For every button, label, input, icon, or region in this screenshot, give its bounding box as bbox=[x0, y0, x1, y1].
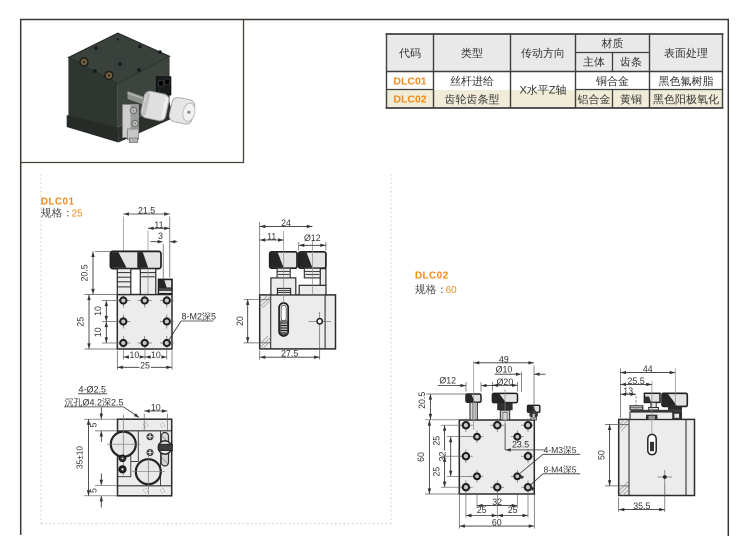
svg-text:Z: Z bbox=[549, 85, 556, 97]
svg-text:35.5: 35.5 bbox=[633, 501, 650, 511]
svg-text:25: 25 bbox=[432, 467, 442, 477]
svg-text:35±10: 35±10 bbox=[75, 446, 85, 469]
svg-text:24: 24 bbox=[281, 218, 291, 228]
svg-text:4-M3: 4-M3 bbox=[544, 445, 564, 455]
svg-text:5: 5 bbox=[89, 488, 99, 493]
svg-text:23.5: 23.5 bbox=[512, 439, 529, 449]
svg-text:10: 10 bbox=[93, 327, 103, 337]
svg-text:8-M2: 8-M2 bbox=[182, 312, 203, 322]
svg-text:DLC02: DLC02 bbox=[415, 270, 449, 281]
svg-text:44: 44 bbox=[643, 364, 653, 374]
svg-text:25: 25 bbox=[508, 505, 518, 515]
svg-text:5: 5 bbox=[572, 445, 577, 455]
svg-text:25: 25 bbox=[477, 505, 487, 515]
svg-text:21.5: 21.5 bbox=[138, 206, 155, 216]
svg-text:Ø20: Ø20 bbox=[497, 377, 514, 387]
svg-text:60: 60 bbox=[416, 452, 426, 462]
svg-text:20: 20 bbox=[235, 316, 245, 326]
svg-text:25: 25 bbox=[432, 436, 442, 446]
svg-text:50: 50 bbox=[597, 450, 607, 460]
svg-text:27.5: 27.5 bbox=[281, 349, 298, 359]
svg-text:13: 13 bbox=[623, 386, 633, 396]
svg-text:25.5: 25.5 bbox=[628, 376, 645, 386]
svg-text:10: 10 bbox=[151, 350, 161, 360]
svg-text:49: 49 bbox=[499, 354, 509, 364]
svg-text:5: 5 bbox=[89, 422, 99, 427]
svg-text:X: X bbox=[520, 85, 528, 97]
svg-text:8-M4: 8-M4 bbox=[544, 464, 564, 474]
svg-text:11: 11 bbox=[154, 220, 163, 230]
svg-text:Ø4.2: Ø4.2 bbox=[83, 397, 103, 407]
svg-text:25: 25 bbox=[140, 360, 150, 370]
svg-text:20.5: 20.5 bbox=[80, 264, 90, 281]
svg-text:20.5: 20.5 bbox=[417, 392, 427, 409]
svg-text:60: 60 bbox=[446, 285, 458, 296]
svg-text:25: 25 bbox=[72, 208, 84, 219]
svg-text:2.5: 2.5 bbox=[111, 397, 124, 407]
svg-text:11: 11 bbox=[267, 232, 276, 242]
svg-text:60: 60 bbox=[492, 518, 502, 528]
svg-text:DLC02: DLC02 bbox=[393, 94, 426, 106]
svg-text:5: 5 bbox=[572, 464, 577, 474]
svg-text:25: 25 bbox=[76, 317, 86, 327]
svg-text:10: 10 bbox=[130, 350, 140, 360]
svg-text:10: 10 bbox=[151, 403, 161, 413]
svg-text:Ø12: Ø12 bbox=[304, 233, 321, 243]
svg-text:5: 5 bbox=[211, 312, 216, 322]
svg-text:10: 10 bbox=[93, 306, 103, 316]
svg-text:Ø10: Ø10 bbox=[496, 364, 513, 374]
svg-text:DLC01: DLC01 bbox=[393, 75, 426, 87]
svg-text:Ø12: Ø12 bbox=[439, 375, 456, 385]
svg-text:4-Ø2.5: 4-Ø2.5 bbox=[79, 384, 107, 394]
svg-text:DLC01: DLC01 bbox=[41, 197, 75, 208]
svg-text:3: 3 bbox=[158, 231, 163, 241]
